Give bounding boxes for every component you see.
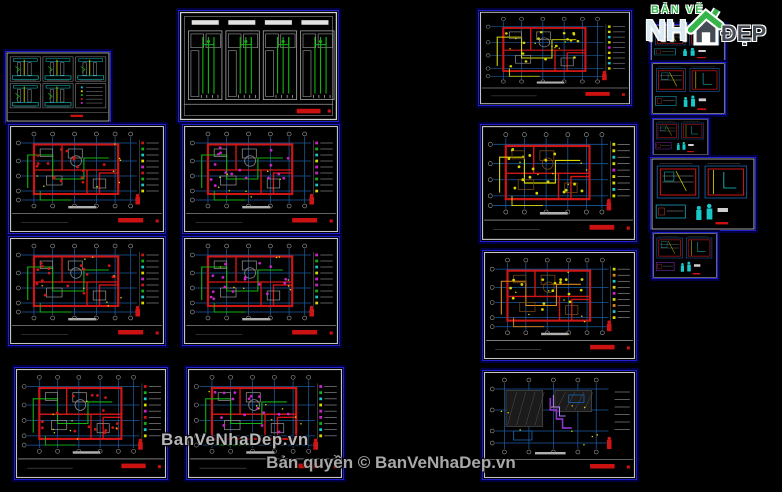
sheet-detail-b[interactable] xyxy=(651,62,726,115)
cad-preview-canvas: BẢN VẼ NH ĐẸP BanVeNhaDep.vn Bản quyền ©… xyxy=(0,0,782,492)
sheet-lighting-plan-2[interactable] xyxy=(182,236,340,346)
sheet-graphic xyxy=(481,125,636,241)
sheet-graphic xyxy=(183,125,339,233)
sheet-section-details[interactable] xyxy=(5,51,111,123)
sheet-detail-c[interactable] xyxy=(652,118,709,156)
sheet-detail-e[interactable] xyxy=(652,232,718,279)
sheet-lighting-plan-1[interactable] xyxy=(182,124,340,234)
watermark-text: BanVeNhaDep.vn xyxy=(161,430,309,450)
sheet-plumbing-plan-3[interactable] xyxy=(482,250,637,361)
sheet-graphic xyxy=(9,125,165,233)
sheet-graphic xyxy=(179,11,338,121)
banvenhadep-logo: BẢN VẼ NH ĐẸP xyxy=(645,5,782,46)
sheet-graphic xyxy=(483,251,636,360)
sheet-electrical-plan-1[interactable] xyxy=(8,124,166,234)
logo-text-dep: ĐẸP xyxy=(721,23,766,45)
sheet-graphic xyxy=(6,52,110,122)
sheet-graphic xyxy=(651,158,755,230)
sheet-graphic xyxy=(652,63,725,114)
copyright-text: Bản quyền © BanVeNhaDep.vn xyxy=(0,453,782,473)
sheet-electrical-plan-2[interactable] xyxy=(8,236,166,346)
sheet-detail-d[interactable] xyxy=(650,157,756,231)
sheet-plumbing-plan-1[interactable] xyxy=(478,10,632,106)
sheet-graphic xyxy=(653,233,717,278)
sheet-graphic xyxy=(183,237,339,345)
logo-text-nh: NH xyxy=(645,17,687,46)
sheet-graphic xyxy=(479,11,631,105)
sheet-riser-diagrams[interactable] xyxy=(178,10,339,122)
sheet-graphic xyxy=(653,119,708,155)
sheet-plumbing-plan-2[interactable] xyxy=(480,124,637,242)
sheet-graphic xyxy=(9,237,165,345)
